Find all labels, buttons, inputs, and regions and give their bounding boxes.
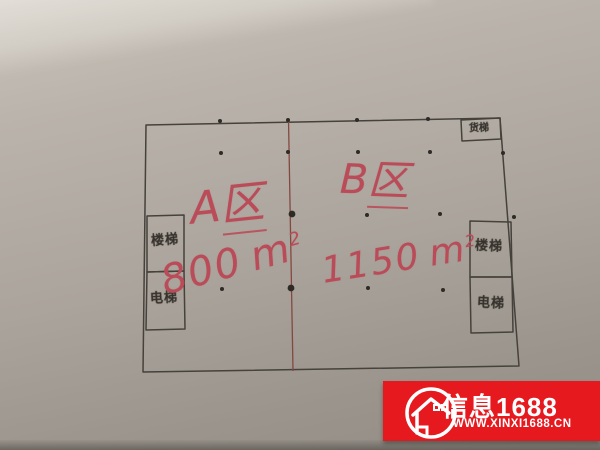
column-dot	[219, 151, 223, 155]
column-dot	[366, 286, 370, 290]
watermark-banner: 信息1688 WWW.XINXI1688.CN	[383, 381, 600, 441]
column-dot	[289, 211, 296, 218]
zone-a-label: A区	[188, 180, 266, 232]
column-dot	[288, 285, 295, 292]
column-dot	[286, 118, 290, 122]
column-dot	[512, 215, 516, 219]
zone-a-suffix: 区	[217, 176, 267, 235]
zone-b-label: B区	[339, 159, 410, 202]
zone-b-area-unit: m	[426, 228, 469, 274]
column-dot	[355, 118, 359, 122]
column-dot	[441, 288, 445, 292]
column-dot	[286, 150, 290, 154]
zone-b-suffix: 区	[367, 156, 410, 209]
right-top-room-label: 楼梯	[475, 238, 504, 252]
right-bottom-room-label: 电梯	[477, 295, 506, 309]
top-right-room-label: 货梯	[469, 124, 489, 135]
left-top-room-label: 楼梯	[151, 232, 180, 247]
column-dot	[428, 150, 432, 154]
column-dot	[356, 150, 360, 154]
watermark-website: WWW.XINXI1688.CN	[453, 418, 572, 430]
column-dot	[501, 151, 505, 155]
photo-bottom-shadow	[0, 440, 600, 450]
column-dot	[438, 212, 442, 216]
column-dot	[365, 213, 369, 217]
floor-plan-photo: 楼梯 电梯 楼梯 电梯 货梯 A区 B区 800 m2 1150 m2 信息16…	[0, 0, 600, 450]
column-dot	[426, 117, 430, 121]
zone-b-letter: B	[339, 155, 369, 204]
column-dot	[218, 119, 222, 123]
